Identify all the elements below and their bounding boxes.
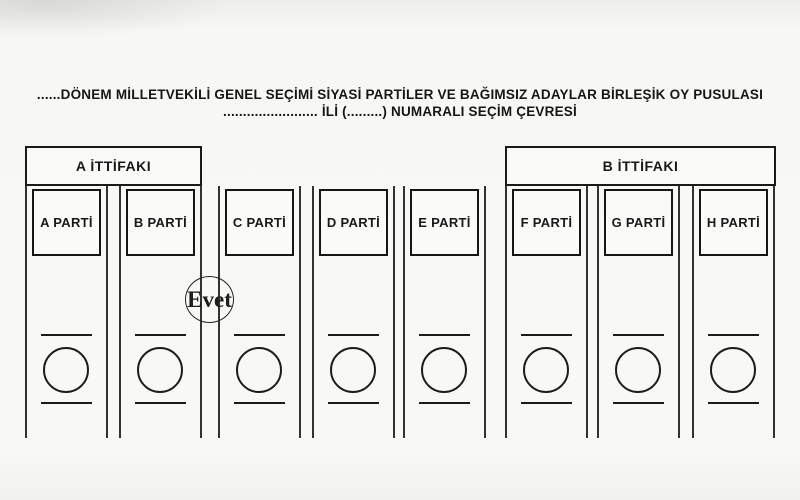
vote-stamp-circle[interactable] (137, 347, 183, 393)
ballot-column-h: H PARTİ (692, 186, 775, 438)
separator-line (419, 402, 470, 404)
evet-stamp-label: Evet (187, 287, 232, 313)
alliance-a-header: A İTTİFAKI (25, 146, 202, 186)
party-name-box: G PARTİ (604, 189, 673, 256)
party-name-box: E PARTİ (410, 189, 479, 256)
vote-stamp-circle[interactable] (330, 347, 376, 393)
separator-line (328, 402, 379, 404)
vote-stamp-circle[interactable] (523, 347, 569, 393)
ballot-column-d: D PARTİ (312, 186, 395, 438)
party-label: F PARTİ (521, 215, 573, 230)
party-label: D PARTİ (327, 215, 380, 230)
party-label: E PARTİ (418, 215, 470, 230)
party-name-box: H PARTİ (699, 189, 768, 256)
separator-line (521, 334, 572, 336)
separator-line (328, 334, 379, 336)
ballot-title-line1: ......DÖNEM MİLLETVEKİLİ GENEL SEÇİMİ Sİ… (0, 87, 800, 103)
ballot-column-e: E PARTİ (403, 186, 486, 438)
alliance-b-label: B İTTİFAKI (603, 158, 679, 174)
separator-line (135, 402, 186, 404)
party-label: A PARTİ (40, 215, 93, 230)
alliance-b-header: B İTTİFAKI (505, 146, 776, 186)
separator-line (708, 334, 759, 336)
separator-line (419, 334, 470, 336)
party-name-box: C PARTİ (225, 189, 294, 256)
separator-line (41, 402, 92, 404)
separator-line (135, 334, 186, 336)
separator-line (234, 334, 285, 336)
separator-line (708, 402, 759, 404)
evet-stamp: Evet (185, 276, 234, 323)
ballot-column-g: G PARTİ (597, 186, 680, 438)
vote-stamp-circle[interactable] (615, 347, 661, 393)
ballot-title-line2: ........................ İLİ (.........)… (0, 104, 800, 120)
ballot-column-a: A PARTİ (25, 186, 108, 438)
party-label: G PARTİ (612, 215, 666, 230)
separator-line (613, 402, 664, 404)
party-name-box: D PARTİ (319, 189, 388, 256)
alliance-a-label: A İTTİFAKI (76, 158, 151, 174)
party-label: B PARTİ (134, 215, 187, 230)
vote-stamp-circle[interactable] (43, 347, 89, 393)
party-label: C PARTİ (233, 215, 286, 230)
vote-stamp-circle[interactable] (236, 347, 282, 393)
separator-line (521, 402, 572, 404)
vote-stamp-circle[interactable] (710, 347, 756, 393)
separator-line (41, 334, 92, 336)
ballot-paper: ......DÖNEM MİLLETVEKİLİ GENEL SEÇİMİ Sİ… (0, 0, 800, 500)
party-name-box: B PARTİ (126, 189, 195, 256)
ballot-column-f: F PARTİ (505, 186, 588, 438)
separator-line (613, 334, 664, 336)
separator-line (234, 402, 285, 404)
vote-stamp-circle[interactable] (421, 347, 467, 393)
party-name-box: A PARTİ (32, 189, 101, 256)
scan-smudge (0, 0, 230, 40)
party-label: H PARTİ (707, 215, 760, 230)
party-name-box: F PARTİ (512, 189, 581, 256)
